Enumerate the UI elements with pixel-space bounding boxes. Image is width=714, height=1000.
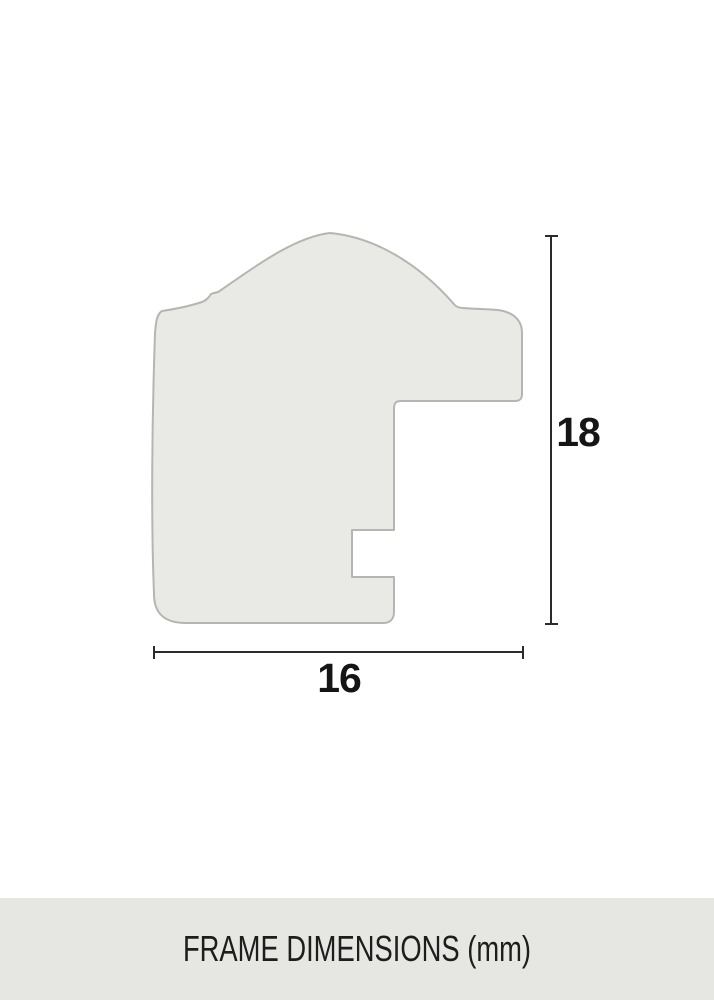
height-dimension-label: 18 [556,409,600,455]
footer-caption-bar: FRAME DIMENSIONS (mm) [0,898,714,1000]
frame-profile-shape [152,233,522,623]
width-dimension: 16 [154,646,523,701]
width-dimension-label: 16 [317,655,361,701]
footer-caption: FRAME DIMENSIONS (mm) [183,928,531,970]
height-dimension: 18 [545,236,600,624]
frame-dimensions-diagram: 18 16 FRAME DIMENSIONS (mm) [0,0,714,1000]
profile-diagram-svg: 18 16 [0,0,714,1000]
